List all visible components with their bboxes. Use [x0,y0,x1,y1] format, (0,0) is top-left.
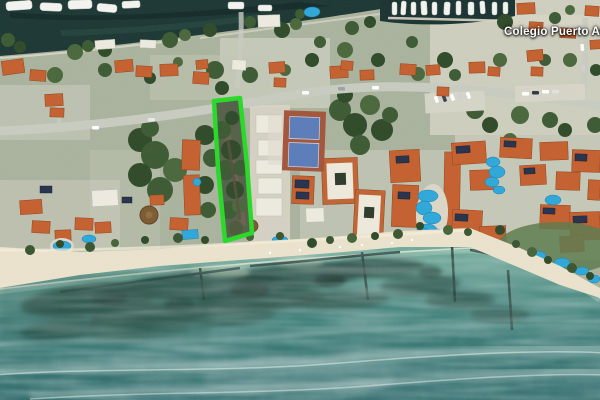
place-label[interactable]: Colegio Puerto Aven [504,26,600,38]
satellite-map-view[interactable]: Colegio Puerto Aven [0,0,600,400]
map-canvas[interactable] [0,0,600,400]
image-grain [0,0,600,400]
